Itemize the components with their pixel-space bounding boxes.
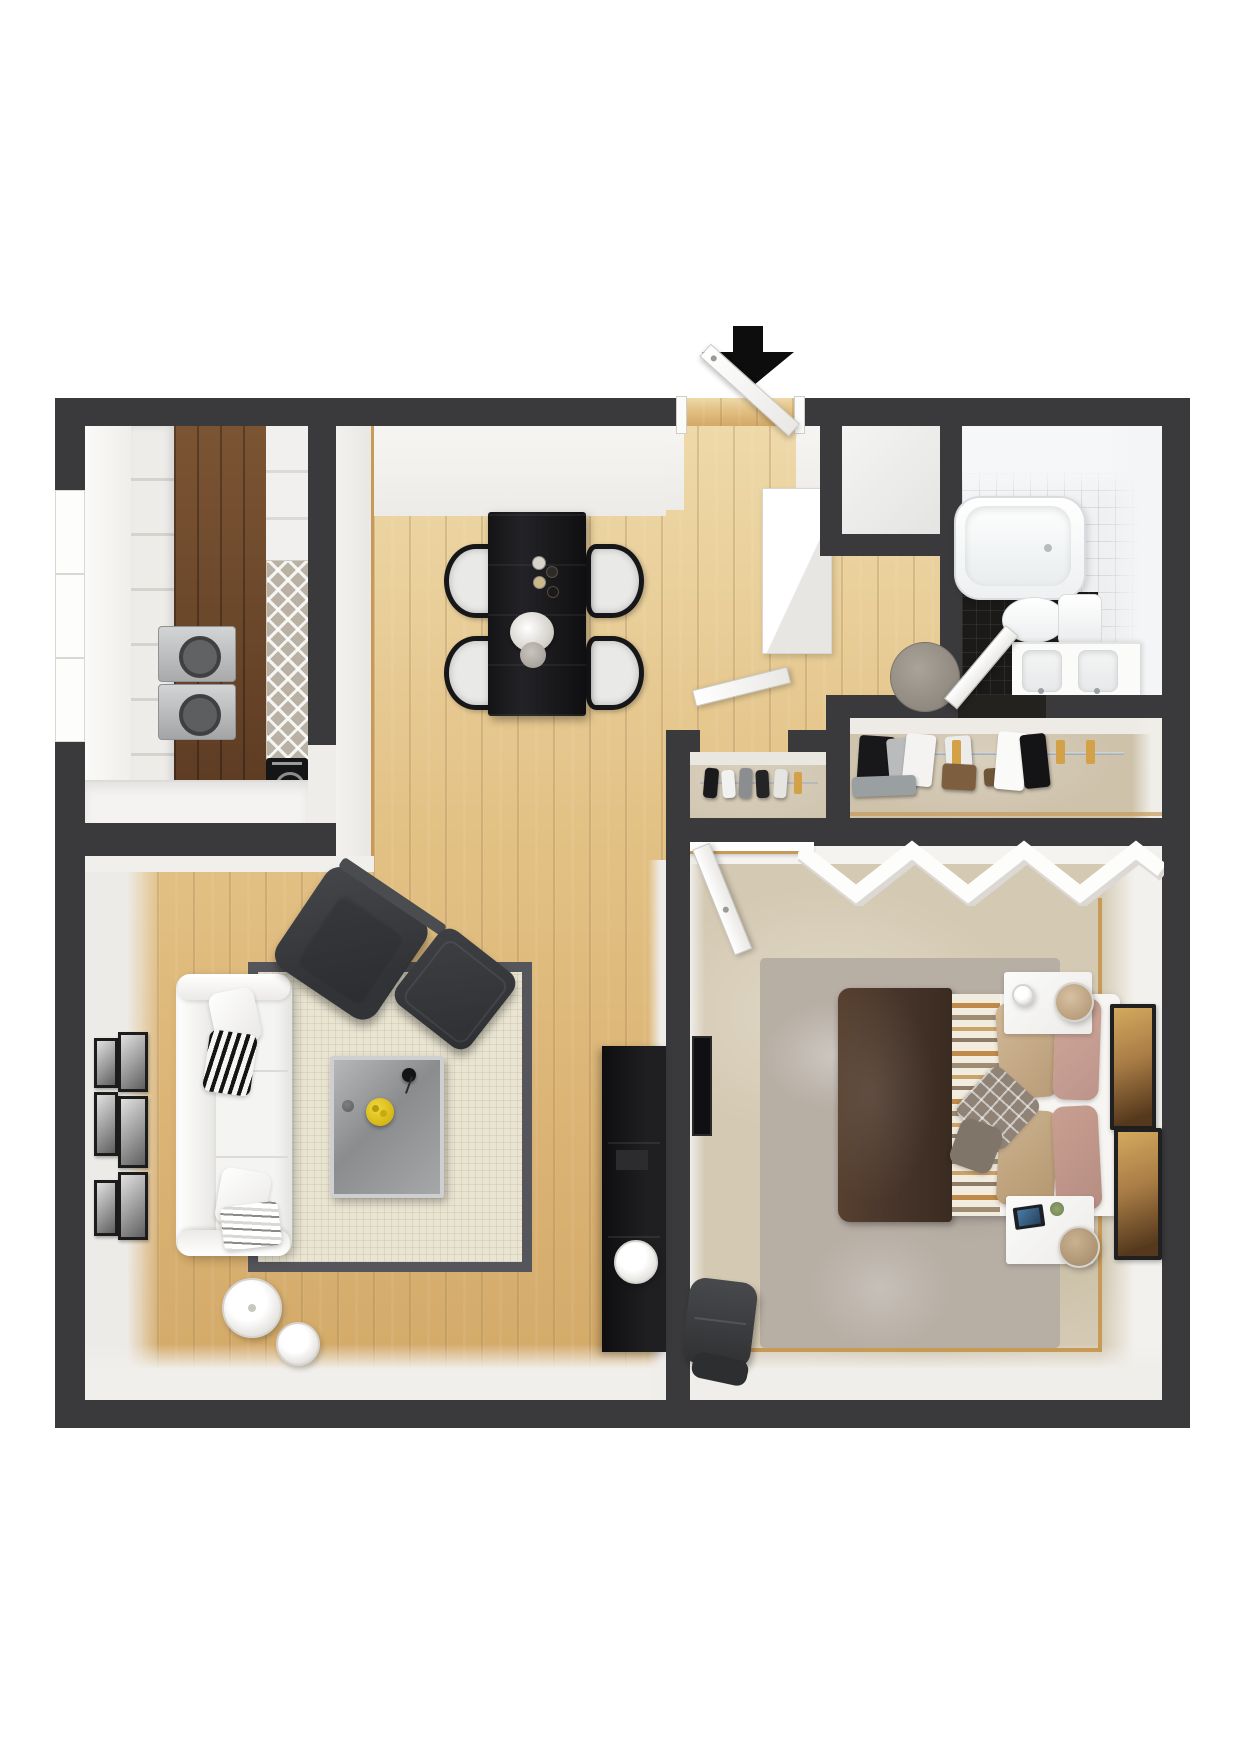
burner: [179, 636, 221, 678]
toilet-tank: [1058, 594, 1102, 646]
bathtub-drain: [1044, 544, 1052, 552]
kitchen-window: [55, 490, 85, 742]
sofa-back: [176, 982, 216, 1248]
stove: [158, 626, 234, 738]
oven-handle: [272, 762, 302, 765]
candle: [532, 556, 546, 570]
side-table-round: [276, 1322, 320, 1366]
lemon: [372, 1105, 379, 1112]
sofa: [176, 974, 292, 1256]
closet-back-face: [690, 752, 826, 765]
nightstand-bottom: [1006, 1196, 1094, 1264]
nightstand-top: [1004, 972, 1092, 1034]
plant: [1050, 1202, 1064, 1216]
wall-alcove-vertical: [820, 398, 842, 556]
speaker: [614, 1240, 658, 1284]
flower-vase: [510, 612, 558, 670]
sofa-seat-seam: [216, 1156, 288, 1158]
burner-module: [158, 684, 236, 740]
lamp-center: [248, 1304, 256, 1312]
table-lamp: [1054, 982, 1094, 1022]
garment: [1019, 733, 1051, 789]
wall-bottom: [55, 1400, 1190, 1428]
gallery-frame: [94, 1180, 118, 1236]
pouf-seam: [694, 1317, 746, 1325]
burner: [179, 694, 221, 736]
lemon: [380, 1110, 387, 1117]
gallery-frame: [118, 1096, 148, 1168]
bedroom-bottom-face: [690, 1344, 1162, 1400]
closet-mat: [852, 775, 917, 797]
gallery-frame: [94, 1092, 118, 1156]
table-lamp: [1058, 1226, 1100, 1268]
sink: [1078, 650, 1118, 692]
kitchen: [85, 426, 308, 868]
bedroom-art: [1114, 1128, 1162, 1260]
partition-end-panel: [308, 745, 336, 823]
dining-top-wall-face: [374, 426, 666, 516]
decor-disc: [1012, 984, 1034, 1006]
gallery-wall: [94, 1032, 146, 1298]
candle: [547, 586, 559, 598]
bathtub: [954, 496, 1086, 600]
partition-face: [336, 426, 374, 856]
wall-bathroom-bottom-right: [1046, 695, 1162, 718]
hanger: [952, 740, 961, 766]
kitchen-floor: [174, 426, 266, 823]
garment: [755, 770, 769, 799]
console-shelf-line: [608, 1236, 660, 1238]
floor-plan: [0, 0, 1240, 1754]
entry-wall-face-left: [666, 426, 684, 510]
wall-right: [1162, 398, 1190, 1428]
kitchen-upper-units: [266, 426, 308, 560]
gallery-frame: [94, 1038, 118, 1088]
entry-closet-floor: [842, 426, 940, 534]
duvet: [838, 988, 952, 1222]
bedroom-tv: [692, 1036, 712, 1136]
sofa-throw-striped: [220, 1201, 283, 1252]
sink: [1022, 650, 1062, 692]
kitchen-pantry-lattice: [266, 560, 310, 760]
window-mullion: [56, 657, 84, 659]
closet-wide: [850, 718, 1162, 818]
wall-kitchen-bottom: [55, 823, 336, 856]
candle: [533, 576, 546, 589]
tablet: [1013, 1204, 1046, 1230]
sofa-pillow-striped: [202, 1029, 258, 1097]
vanity: [1012, 642, 1140, 697]
vase-body: [520, 642, 546, 668]
lemon-bowl: [366, 1098, 394, 1126]
dining-table: [488, 512, 586, 716]
zigzag-shelf: [798, 840, 1164, 906]
door-handle: [722, 906, 730, 914]
bedroom-carpet-trim-bottom: [704, 1348, 1100, 1352]
living-bottom-wall-face: [85, 1344, 666, 1400]
candle: [546, 566, 558, 578]
faucet: [1038, 688, 1044, 694]
table-cup: [342, 1100, 354, 1112]
console-box: [616, 1150, 648, 1170]
bathtub-basin: [965, 506, 1071, 586]
entry-arrow-shaft: [733, 326, 763, 354]
bedroom-art: [1110, 1004, 1156, 1130]
console-shelf-line: [608, 1142, 660, 1144]
garment: [721, 770, 736, 799]
shoe-mat: [941, 763, 976, 791]
faucet: [1094, 688, 1100, 694]
coffee-table: [330, 1056, 444, 1198]
candles: [532, 556, 558, 602]
gallery-frame: [118, 1032, 148, 1092]
closet-right-face: [1132, 718, 1162, 818]
floor-lamp: [222, 1278, 282, 1338]
hanger: [1086, 740, 1095, 764]
entry-door-frame: [676, 396, 687, 434]
hanger: [1056, 740, 1065, 764]
media-console: [602, 1046, 666, 1352]
door-handle: [709, 354, 717, 362]
garment: [738, 768, 753, 799]
gallery-frame: [118, 1172, 148, 1240]
bathroom-door-gap: [958, 695, 1046, 718]
wall-top: [55, 398, 1190, 426]
window-mullion: [56, 573, 84, 575]
wall-kitchen-partition: [308, 398, 336, 745]
garment: [703, 767, 720, 798]
tablet-screen: [1017, 1208, 1041, 1227]
kitchen-counter: [85, 780, 308, 825]
closet-trim: [850, 812, 1162, 816]
hanger: [794, 772, 802, 794]
closet-small: [690, 752, 826, 818]
garment: [773, 769, 788, 799]
burner-module: [158, 626, 236, 682]
